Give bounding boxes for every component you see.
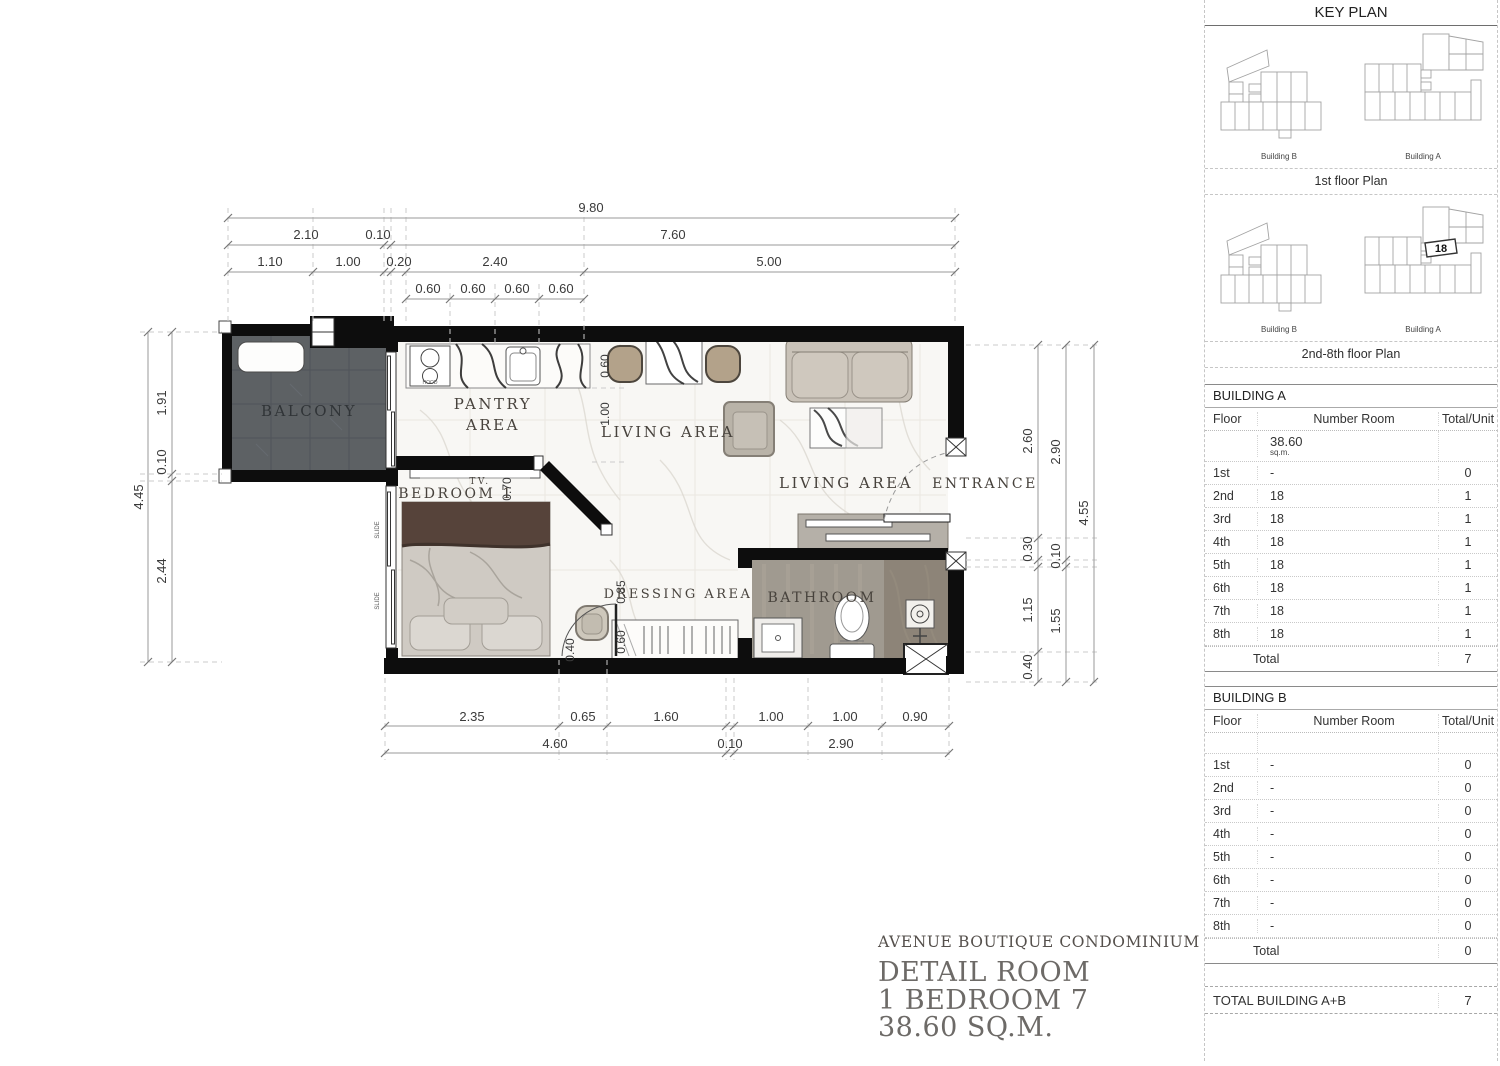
dim: 0.40 <box>1020 654 1035 679</box>
room-label-living-top: LIVING AREA <box>601 423 735 441</box>
table-row: 3rd 18 1 <box>1205 508 1497 531</box>
room-cell: 18 <box>1257 558 1438 572</box>
key-plan-2nd-8th-caption: 2nd-8th floor Plan <box>1205 341 1497 368</box>
floor-cell: 5th <box>1205 850 1257 864</box>
table-row: 6th - 0 <box>1205 869 1497 892</box>
vanity-sink <box>754 618 802 658</box>
project-name: AVENUE BOUTIQUE CONDOMINIUM <box>878 933 1200 951</box>
dim: 2.40 <box>482 254 507 269</box>
col-number-room: Number Room <box>1257 412 1438 426</box>
table-row: 7th - 0 <box>1205 892 1497 915</box>
dim: 0.10 <box>154 449 169 474</box>
grand-total-label: TOTAL BUILDING A+B <box>1205 993 1438 1008</box>
area-unit: sq.m. <box>1270 449 1438 457</box>
floor-cell: 4th <box>1205 535 1257 549</box>
dim: 0.30 <box>1020 536 1035 561</box>
col-total-unit: Total/Unit <box>1438 412 1497 426</box>
room-cell: - <box>1257 827 1438 841</box>
floor-cell: 1st <box>1205 466 1257 480</box>
total-value: 7 <box>1438 652 1497 666</box>
floorplan-sheet: HOOD <box>0 0 1500 1061</box>
sofa <box>786 338 912 402</box>
key-plan-sidebar: KEY PLAN <box>1204 0 1498 1061</box>
dim: 1.15 <box>1020 597 1035 622</box>
total-value: 0 <box>1438 944 1497 958</box>
floor-cell: 3rd <box>1205 512 1257 526</box>
room-label-entrance: ENTRANCE <box>932 476 1038 492</box>
mini-building-b <box>1221 223 1321 311</box>
table-row: 3rd - 0 <box>1205 800 1497 823</box>
grand-total-row: TOTAL BUILDING A+B 7 <box>1205 986 1497 1014</box>
unit-cell: 0 <box>1438 850 1497 864</box>
unit-cell: 1 <box>1438 558 1497 572</box>
dim: 0.90 <box>902 709 927 724</box>
table-row: 7th 18 1 <box>1205 600 1497 623</box>
room-cell: - <box>1257 896 1438 910</box>
total-label: Total <box>1205 944 1438 958</box>
slide-label: SLIDE <box>375 521 381 538</box>
dim: 1.91 <box>154 390 169 415</box>
dim: 2.90 <box>828 736 853 751</box>
dim: 0.60 <box>504 281 529 296</box>
unit-cell: 0 <box>1438 896 1497 910</box>
dim: 2.90 <box>1048 439 1063 464</box>
building-b-label: Building B <box>1261 152 1297 161</box>
table-row: 5th 18 1 <box>1205 554 1497 577</box>
dim: 0.40 <box>563 638 577 662</box>
area-cell: 38.60 sq.m. <box>1257 435 1438 457</box>
room-cell: - <box>1257 850 1438 864</box>
dining-chair-right <box>706 346 740 382</box>
stool <box>576 606 608 640</box>
floor-cell: 2nd <box>1205 489 1257 503</box>
dim: 0.60 <box>460 281 485 296</box>
col-number-room: Number Room <box>1257 714 1438 728</box>
floor-cell: 6th <box>1205 873 1257 887</box>
mini-building-a <box>1365 34 1483 120</box>
dim: 0.60 <box>415 281 440 296</box>
building-b-table: BUILDING B Floor Number Room Total/Unit … <box>1205 686 1497 964</box>
total-row: Total 7 <box>1205 646 1497 671</box>
dim: 2.44 <box>154 558 169 583</box>
unit-cell: 0 <box>1438 466 1497 480</box>
area-value: 38.60 <box>1270 435 1438 448</box>
floor-cell: 8th <box>1205 919 1257 933</box>
floor-cell: 1st <box>1205 758 1257 772</box>
key-plan-1st-floor: Building B Building A <box>1205 26 1497 168</box>
unit-cell: 0 <box>1438 781 1497 795</box>
unit-cell: 0 <box>1438 827 1497 841</box>
floor-cell: 5th <box>1205 558 1257 572</box>
hood-label: HOOD <box>423 380 438 386</box>
key-plan-2nd-8th-floor: 18 Building B Building A <box>1205 195 1497 341</box>
unit-cell: 1 <box>1438 581 1497 595</box>
room-cell: 18 <box>1257 627 1438 641</box>
unit-cell: 1 <box>1438 489 1497 503</box>
room-cell: 18 <box>1257 581 1438 595</box>
unit-cell: 0 <box>1438 758 1497 772</box>
title-area: 38.60 SQ.M. <box>878 1014 1200 1042</box>
dim-top-total: 9.80 <box>578 200 603 215</box>
table-row: 6th 18 1 <box>1205 577 1497 600</box>
dim: 0.10 <box>1048 543 1063 568</box>
key-plan-1st-caption: 1st floor Plan <box>1205 168 1497 195</box>
key-plan-2nd-drawing: 18 Building B Building A <box>1205 195 1497 341</box>
room-label-bedroom: BEDROOM 1 <box>398 486 513 502</box>
col-total-unit: Total/Unit <box>1438 714 1497 728</box>
table-header: Floor Number Room Total/Unit <box>1205 408 1497 431</box>
unit-number-marker: 18 <box>1435 243 1447 255</box>
title-unit-type: 1 BEDROOM 7 <box>878 987 1200 1015</box>
col-floor: Floor <box>1205 412 1257 426</box>
unit-cell: 0 <box>1438 804 1497 818</box>
key-plan-title: KEY PLAN <box>1205 0 1497 26</box>
dim: 1.00 <box>335 254 360 269</box>
room-label-dressing: DRESSING AREA <box>604 587 753 602</box>
floor-cell: 4th <box>1205 827 1257 841</box>
kitchen-sink <box>506 347 540 385</box>
dim: 1.55 <box>1048 608 1063 633</box>
dim: 0.10 <box>365 227 390 242</box>
dim: 0.65 <box>570 709 595 724</box>
floor-cell: 2nd <box>1205 781 1257 795</box>
dim: 4.55 <box>1076 500 1091 525</box>
bed <box>402 502 550 656</box>
room-cell: - <box>1257 758 1438 772</box>
building-a-label: Building A <box>1405 152 1441 161</box>
total-row: Total 0 <box>1205 938 1497 963</box>
room-label-living-main: LIVING AREA <box>779 474 913 492</box>
building-a-table: BUILDING A Floor Number Room Total/Unit … <box>1205 384 1497 672</box>
floor-cell: 3rd <box>1205 804 1257 818</box>
kitchen-counter: HOOD <box>406 344 590 388</box>
room-label-bathroom: BATHROOM <box>767 590 876 606</box>
building-b-label: Building B <box>1261 325 1297 334</box>
col-floor: Floor <box>1205 714 1257 728</box>
area-row-empty <box>1205 733 1497 754</box>
building-a-title: BUILDING A <box>1205 385 1497 408</box>
coffee-table <box>810 408 882 448</box>
floor-cell: 7th <box>1205 604 1257 618</box>
room-label-balcony: BALCONY <box>261 402 357 420</box>
dim: 0.10 <box>717 736 742 751</box>
area-row: 38.60 sq.m. <box>1205 431 1497 462</box>
room-cell: 18 <box>1257 535 1438 549</box>
tv-label: TV. <box>469 477 490 487</box>
floor-plan-drawing: HOOD <box>0 0 1204 1061</box>
balcony-planter <box>238 342 304 372</box>
dim: 0.20 <box>386 254 411 269</box>
room-cell: - <box>1257 804 1438 818</box>
dim: 2.10 <box>293 227 318 242</box>
unit-cell: 0 <box>1438 919 1497 933</box>
floor-cell: 7th <box>1205 896 1257 910</box>
dim: 4.60 <box>542 736 567 751</box>
grand-total-value: 7 <box>1438 993 1497 1008</box>
floor-cell: 6th <box>1205 581 1257 595</box>
table-row: 1st - 0 <box>1205 462 1497 485</box>
dim: 2.35 <box>459 709 484 724</box>
room-cell: 18 <box>1257 512 1438 526</box>
dim: 2.60 <box>1020 428 1035 453</box>
table-row: 8th - 0 <box>1205 915 1497 938</box>
table-row: 1st - 0 <box>1205 754 1497 777</box>
room-cell: - <box>1257 466 1438 480</box>
room-cell: 18 <box>1257 604 1438 618</box>
dim: 0.60 <box>598 354 612 378</box>
room-label-pantry-area: AREA <box>465 416 520 434</box>
dim: 0.60 <box>548 281 573 296</box>
room-cell: - <box>1257 873 1438 887</box>
sliding-door-balcony <box>386 352 396 468</box>
dim: 1.60 <box>653 709 678 724</box>
room-label-pantry: PANTRY <box>454 395 532 413</box>
mini-building-b <box>1221 50 1321 138</box>
dim: 7.60 <box>660 227 685 242</box>
dining-chair-left <box>608 346 642 382</box>
table-header: Floor Number Room Total/Unit <box>1205 710 1497 733</box>
building-b-title: BUILDING B <box>1205 687 1497 710</box>
table-row: 4th 18 1 <box>1205 531 1497 554</box>
table-row: 4th - 0 <box>1205 823 1497 846</box>
floor-cell: 8th <box>1205 627 1257 641</box>
table-row: 2nd 18 1 <box>1205 485 1497 508</box>
slide-label: SLIDE <box>375 592 381 609</box>
total-label: Total <box>1205 652 1438 666</box>
title-detail-room: DETAIL ROOM <box>878 959 1200 987</box>
dim: 5.00 <box>756 254 781 269</box>
clothes-rack <box>612 620 738 660</box>
key-plan-1st-drawing: Building B Building A <box>1205 26 1497 168</box>
unit-cell: 1 <box>1438 627 1497 641</box>
table-row: 8th 18 1 <box>1205 623 1497 646</box>
dim: 1.10 <box>257 254 282 269</box>
pillow <box>444 598 508 624</box>
table-row: 2nd - 0 <box>1205 777 1497 800</box>
sliding-window-bedroom <box>386 486 396 648</box>
dim: 0.60 <box>614 630 628 654</box>
dim: 4.45 <box>131 484 146 509</box>
table-row: 5th - 0 <box>1205 846 1497 869</box>
dim: 1.00 <box>832 709 857 724</box>
room-cell: - <box>1257 919 1438 933</box>
room-cell: - <box>1257 781 1438 795</box>
dim: 1.00 <box>758 709 783 724</box>
mini-building-a <box>1365 207 1483 293</box>
building-a-label: Building A <box>1405 325 1441 334</box>
unit-cell: 1 <box>1438 604 1497 618</box>
room-cell: 18 <box>1257 489 1438 503</box>
unit-cell: 0 <box>1438 873 1497 887</box>
title-block: AVENUE BOUTIQUE CONDOMINIUM DETAIL ROOM … <box>878 933 1200 1042</box>
unit-cell: 1 <box>1438 535 1497 549</box>
floor-shaft <box>904 644 948 674</box>
unit-cell: 1 <box>1438 512 1497 526</box>
